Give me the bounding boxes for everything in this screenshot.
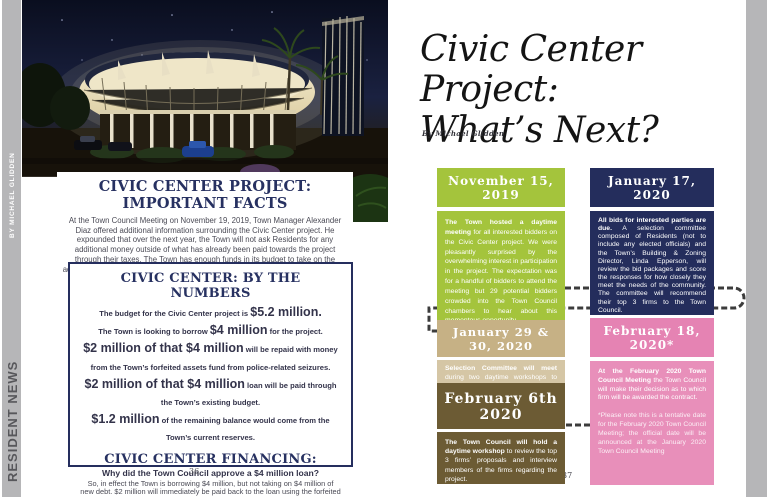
numbers-line: $2 million of that $4 million loan will … [80,376,341,410]
timeline-box-february-18-2020: February 18, 2020* At the February 2020 … [590,318,714,485]
timeline-box-body: All bids for interested parties are due.… [590,211,714,315]
article-byline: By Michael Glidden [422,129,504,138]
numbers-line: The Town is looking to borrow $4 million… [80,322,341,339]
by-the-numbers-box: CIVIC CENTER: BY THE NUMBERS The budget … [68,262,353,467]
sidebar-byline: BY MICHAEL GLIDDEN [9,138,16,238]
timeline-date-header: February 18, 2020* [590,318,714,357]
timeline-date-header: February 6th 2020 [437,383,565,429]
financing-heading: CIVIC CENTER FINANCING: [80,452,341,467]
timeline-box-body: At the February 2020 Town Council Meetin… [590,361,714,485]
page-number-left: 36 [189,467,199,476]
timeline-date-header: January 17, 2020 [590,168,714,207]
timeline-date-header: November 15, 2019 [437,168,565,207]
timeline-box-november-15-2019: November 15, 2019 The Town hosted a dayt… [437,168,565,322]
timeline-box-body: The Town hosted a daytime meeting for al… [437,211,565,322]
magazine-spread: BY MICHAEL GLIDDEN RESIDENT NEWS [0,0,768,497]
numbers-line: $2 million of that $4 million will be re… [80,340,341,357]
left-edge-strip: BY MICHAEL GLIDDEN RESIDENT NEWS [2,0,21,497]
important-facts-heading: CIVIC CENTER PROJECT: IMPORTANT FACTS [57,178,353,212]
timeline-box-january-17-2020: January 17, 2020 All bids for interested… [590,168,714,315]
numbers-line: The budget for the Civic Center project … [80,304,341,321]
timeline-box-paragraph: At the February 2020 Town Council Meetin… [598,368,706,403]
numbers-line: $1.2 million of the remaining balance wo… [80,411,341,445]
by-the-numbers-heading: CIVIC CENTER: BY THE NUMBERS [80,271,341,301]
timeline-box-body: The Town Council will hold a daytime wor… [437,432,565,484]
financing-question: Why did the Town Council approve a $4 mi… [80,468,341,478]
tentative-date-note: *Please note this is a tentative date fo… [598,412,706,456]
timeline-date-header: January 29 & 30, 2020 [437,320,565,357]
sidebar-section-label: RESIDENT NEWS [5,332,20,482]
article-title-line1: Civic Center Project: [420,30,755,111]
numbers-line: from the Town’s forfeited assets fund fr… [80,358,341,375]
timeline-box-february-6-2020: February 6th 2020 The Town Council will … [437,383,565,484]
by-the-numbers-lines: The budget for the Civic Center project … [80,304,341,445]
financing-body: So, in effect the Town is borrowing $4 m… [80,480,341,497]
